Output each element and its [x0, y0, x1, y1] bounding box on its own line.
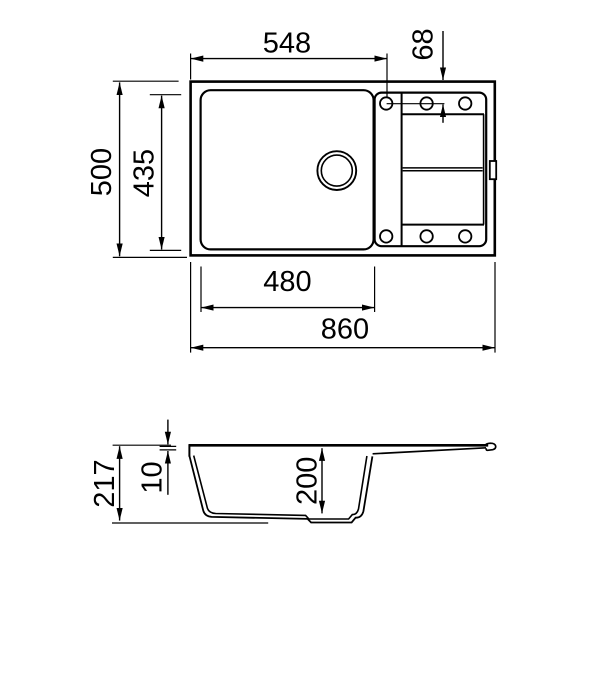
- drainboard-compartment-outline: [375, 93, 487, 247]
- dimension-label-480: 480: [263, 266, 311, 298]
- dimension-480: 480: [201, 266, 375, 312]
- dimension-10: 10: [137, 420, 177, 495]
- drain-outer-circle: [317, 151, 356, 190]
- dimension-548: 548: [191, 28, 387, 97]
- dimension-435: 435: [129, 95, 182, 251]
- dimension-label-548: 548: [263, 28, 311, 60]
- drain-inner-circle: [321, 155, 352, 186]
- side-section-view: 217 10 200: [89, 420, 496, 523]
- tap-hole: [459, 97, 471, 109]
- bowl-profile-outer: [189, 456, 372, 523]
- technical-drawing-canvas: 548 68 500 435 480: [0, 0, 600, 689]
- tap-hole: [420, 230, 432, 242]
- dimension-label-68: 68: [408, 28, 440, 60]
- drainboard-underside-line: [373, 448, 486, 454]
- dimension-217: 217: [89, 445, 268, 523]
- dimension-label-435: 435: [129, 149, 161, 197]
- bowl-profile-inner: [194, 456, 367, 519]
- bowl-outline: [201, 90, 374, 249]
- right-rim-hook: [485, 443, 496, 450]
- technical-drawing-page: 548 68 500 435 480: [0, 0, 600, 689]
- dimension-68: 68: [387, 28, 445, 122]
- dimension-label-500: 500: [86, 148, 118, 196]
- dimension-label-200: 200: [292, 457, 324, 505]
- dimension-200: 200: [292, 448, 324, 513]
- tap-hole: [380, 230, 392, 242]
- tap-hole: [459, 230, 471, 242]
- mounting-clip: [490, 161, 496, 179]
- dimension-label-217: 217: [89, 459, 121, 507]
- dimension-label-10: 10: [137, 461, 169, 493]
- top-view: 548 68 500 435 480: [86, 28, 496, 353]
- dimension-label-860: 860: [321, 314, 369, 346]
